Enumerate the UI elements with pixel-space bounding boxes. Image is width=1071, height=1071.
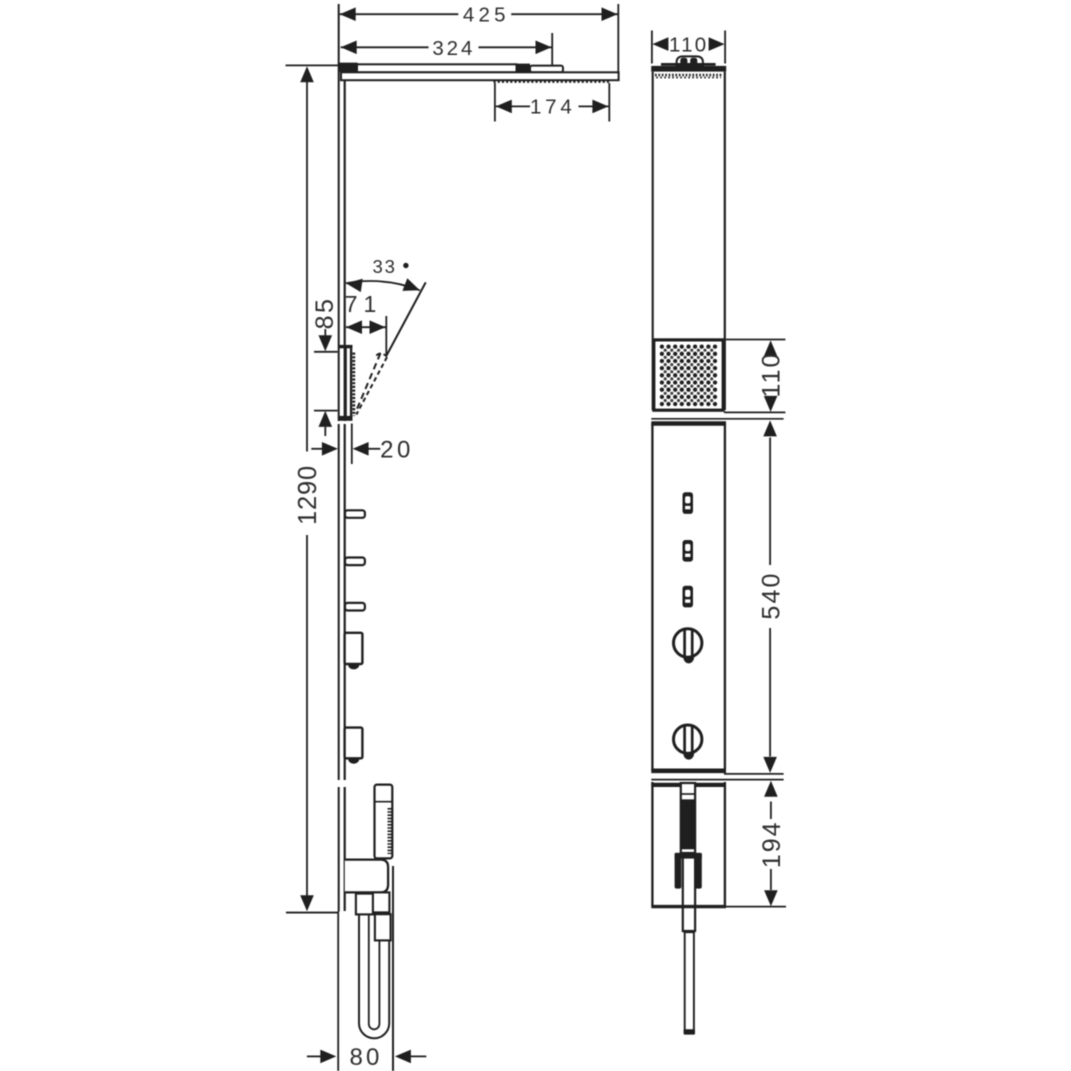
svg-text:194: 194 [758,820,786,868]
svg-text:110: 110 [669,34,708,57]
svg-text:540: 540 [757,571,785,619]
svg-text:1290: 1290 [294,465,322,525]
svg-text:85: 85 [311,297,339,330]
svg-text:33: 33 [373,256,397,277]
svg-text:20: 20 [380,436,414,463]
svg-text:425: 425 [463,3,510,26]
svg-text:80: 80 [349,1044,382,1071]
svg-text:174: 174 [530,96,576,119]
svg-text:324: 324 [432,37,475,60]
svg-text:110: 110 [758,352,786,398]
svg-text:71: 71 [345,291,383,317]
